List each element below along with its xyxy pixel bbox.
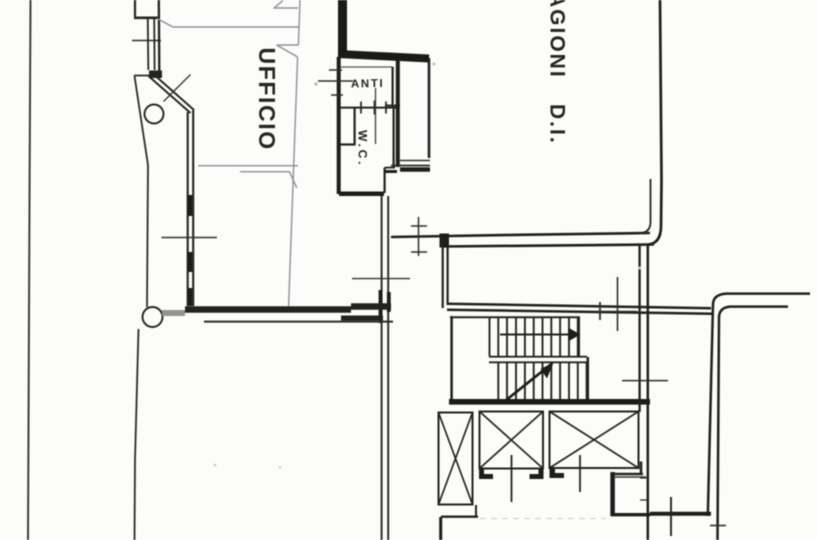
- svg-text:UFFICIO: UFFICIO: [254, 48, 280, 151]
- svg-text:ANTI: ANTI: [351, 78, 384, 91]
- svg-text:D.I.: D.I.: [546, 104, 569, 145]
- svg-text:W.C.: W.C.: [356, 130, 370, 167]
- svg-text:AGIONI: AGIONI: [546, 0, 569, 79]
